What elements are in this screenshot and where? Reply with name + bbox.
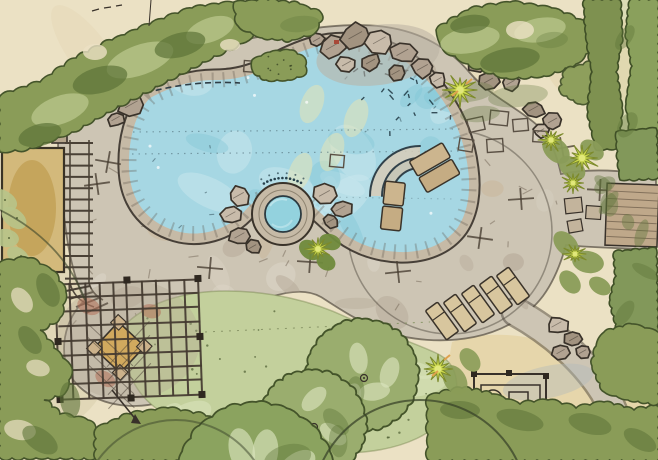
sparkle: [246, 76, 249, 79]
sparkle: [253, 94, 256, 97]
tile-dash: [408, 94, 409, 98]
pergola-post: [123, 276, 130, 283]
stepping-stone: [567, 219, 583, 233]
lawn-dot: [273, 310, 275, 312]
boulder: [576, 346, 590, 359]
lawn-dot: [398, 431, 400, 433]
waterfall-accent: [334, 40, 339, 44]
foliage-gap: [83, 44, 107, 60]
spill-dot: [281, 177, 284, 180]
lawn-dot: [196, 373, 198, 375]
in-pool-lounger: [380, 206, 402, 231]
lawn-dot: [258, 329, 260, 331]
landscape-plan-drawing: [0, 0, 658, 460]
pergola-post: [54, 338, 61, 345]
stone-joint: [416, 281, 422, 282]
sparkle: [429, 212, 432, 215]
lawn-dot: [254, 356, 256, 358]
spill-dot: [285, 177, 288, 180]
lawn-dot: [244, 370, 246, 372]
sparkle: [157, 166, 160, 169]
spill-dot: [270, 179, 273, 182]
spill-dot: [266, 180, 269, 183]
pergola-post: [196, 333, 203, 340]
boulder: [549, 318, 568, 333]
lawn-dot: [206, 344, 208, 346]
pergola-post: [194, 275, 201, 282]
lawn-dot: [265, 365, 267, 367]
in-pool-lounger: [383, 181, 405, 206]
lawn-dot: [425, 393, 427, 395]
boulder: [389, 65, 405, 81]
sparkle: [149, 145, 152, 148]
pergola-post: [127, 394, 134, 401]
lawn-dot: [388, 437, 390, 439]
foliage-gap: [220, 39, 240, 51]
post: [506, 370, 512, 376]
spill-dot: [263, 182, 266, 185]
foliage-gap: [506, 21, 534, 39]
lawn-dot: [219, 358, 221, 360]
lawn-dot: [426, 371, 428, 373]
tile-dash: [416, 80, 417, 84]
lawn-dot: [191, 368, 194, 371]
pergola-post: [198, 391, 205, 398]
landscape-plan-stage: [0, 0, 658, 460]
spill-dot: [273, 178, 276, 181]
lawn-dot: [407, 419, 409, 421]
spill-dot: [289, 177, 292, 180]
stepping-stone: [564, 197, 582, 214]
post: [543, 373, 549, 379]
boulder: [313, 184, 337, 204]
spill-dot: [300, 182, 303, 185]
spill-dot: [293, 178, 296, 181]
spill-dot: [296, 180, 299, 183]
spill-dot: [277, 177, 280, 180]
sparkle: [305, 101, 308, 104]
ripple-dash: [210, 145, 211, 148]
post: [471, 371, 477, 377]
